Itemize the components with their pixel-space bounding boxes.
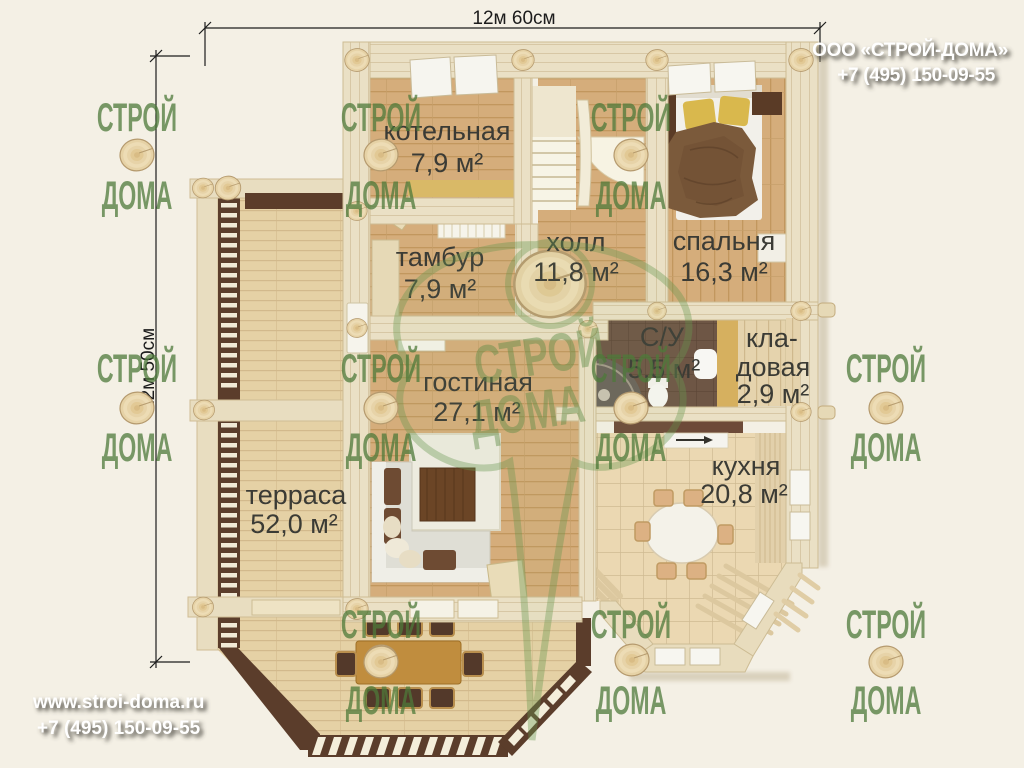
svg-text:ДОМА: ДОМА	[346, 424, 417, 469]
svg-text:терраса: терраса	[246, 480, 348, 510]
svg-text:ДОМА: ДОМА	[596, 424, 667, 469]
svg-text:довая: довая	[736, 352, 810, 382]
svg-text:ДОМА: ДОМА	[102, 424, 173, 469]
svg-text:СТРОЙ: СТРОЙ	[591, 344, 671, 390]
svg-text:2,9 м²: 2,9 м²	[737, 379, 810, 409]
svg-text:ДОМА: ДОМА	[346, 172, 417, 217]
svg-text:ДОМА: ДОМА	[851, 677, 922, 722]
svg-text:ДОМА: ДОМА	[102, 172, 173, 217]
svg-text:ДОМА: ДОМА	[596, 677, 667, 722]
svg-text:кла-: кла-	[746, 323, 798, 353]
svg-text:СТРОЙ: СТРОЙ	[97, 93, 177, 139]
svg-text:ООО «СТРОЙ-ДОМА»: ООО «СТРОЙ-ДОМА»	[812, 39, 1008, 61]
svg-text:ДОМА: ДОМА	[596, 172, 667, 217]
svg-text:СТРОЙ: СТРОЙ	[846, 344, 926, 390]
svg-text:7,9 м²: 7,9 м²	[411, 148, 484, 178]
svg-text:+7 (495) 150-09-55: +7 (495) 150-09-55	[837, 65, 996, 86]
svg-text:СТРОЙ: СТРОЙ	[846, 600, 926, 646]
svg-text:кухня: кухня	[712, 451, 781, 481]
svg-text:16,3 м²: 16,3 м²	[680, 257, 768, 287]
svg-text:20,8 м²: 20,8 м²	[700, 479, 788, 509]
svg-text:СТРОЙ: СТРОЙ	[341, 600, 421, 646]
svg-text:+7 (495) 150-09-55: +7 (495) 150-09-55	[37, 718, 201, 739]
svg-text:www.stroi-doma.ru: www.stroi-doma.ru	[32, 692, 204, 713]
svg-text:СТРОЙ: СТРОЙ	[591, 93, 671, 139]
svg-text:СТРОЙ: СТРОЙ	[341, 93, 421, 139]
svg-text:52,0 м²: 52,0 м²	[250, 509, 338, 539]
svg-text:СТРОЙ: СТРОЙ	[591, 600, 671, 646]
svg-text:12м 60см: 12м 60см	[472, 8, 555, 29]
svg-text:СТРОЙ: СТРОЙ	[97, 344, 177, 390]
svg-text:СТРОЙ: СТРОЙ	[341, 344, 421, 390]
svg-text:ДОМА: ДОМА	[851, 424, 922, 469]
svg-text:спальня: спальня	[673, 226, 776, 256]
svg-text:ДОМА: ДОМА	[346, 677, 417, 722]
